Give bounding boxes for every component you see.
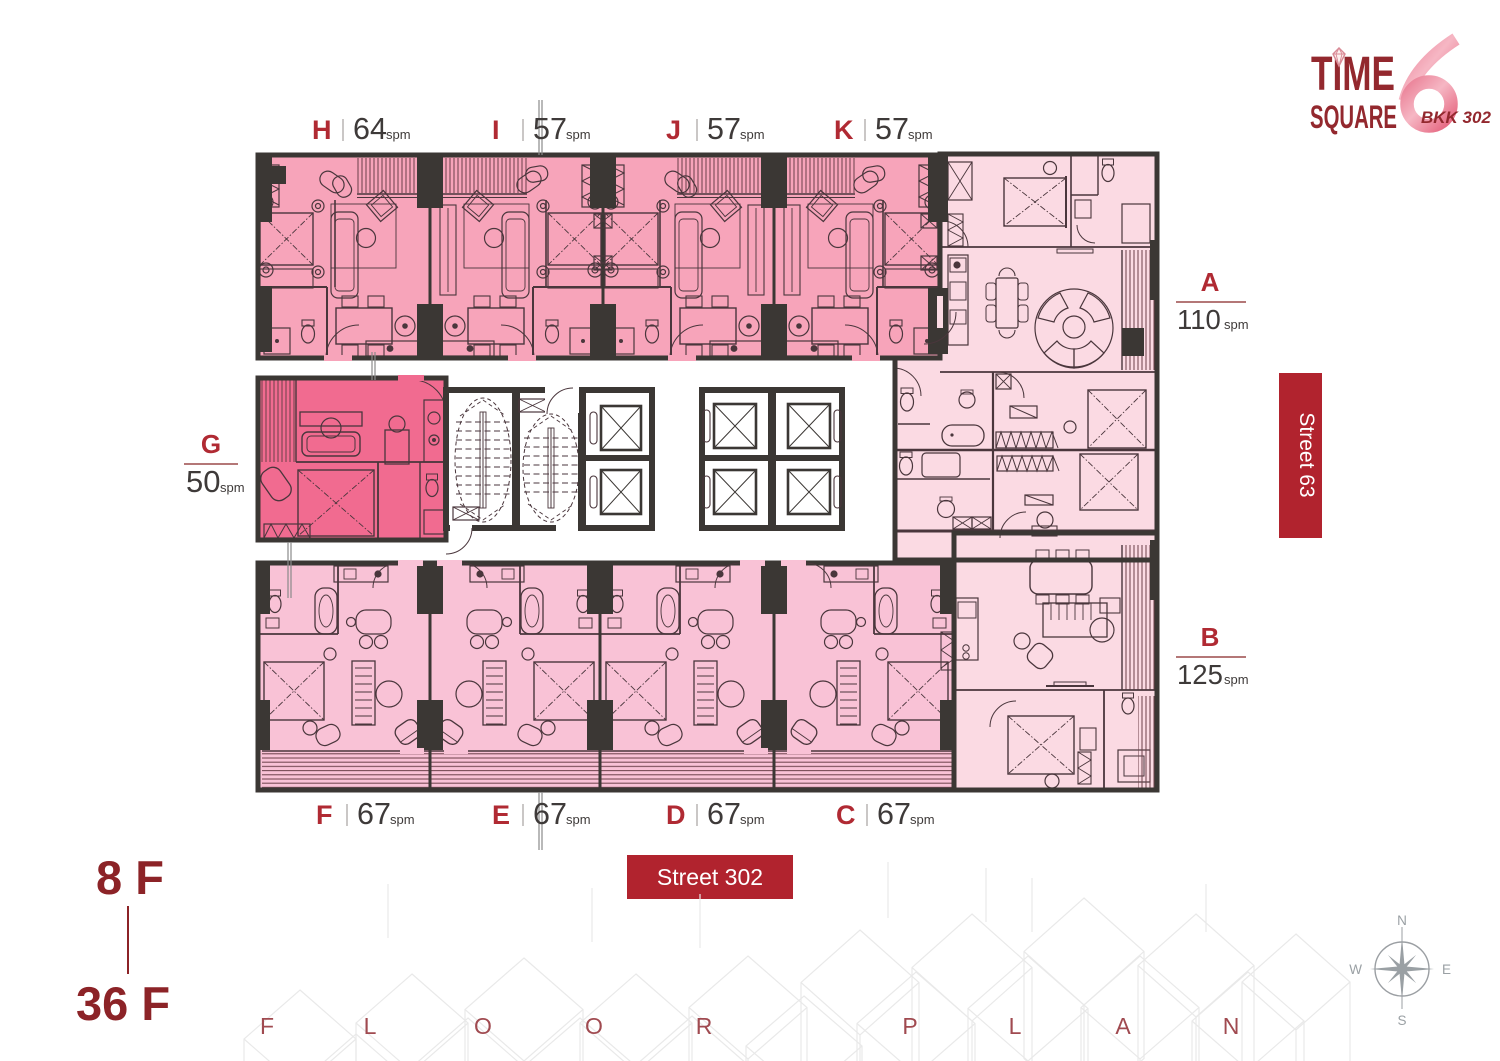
svg-text:spm: spm <box>1224 317 1249 332</box>
svg-text:57: 57 <box>533 112 567 146</box>
svg-text:D: D <box>666 800 686 830</box>
svg-text:K: K <box>834 115 854 145</box>
svg-text:110: 110 <box>1177 304 1221 335</box>
svg-text:G: G <box>201 429 221 459</box>
svg-text:A: A <box>1115 1013 1131 1039</box>
svg-text:F: F <box>316 800 333 830</box>
svg-text:O: O <box>474 1013 492 1039</box>
svg-text:N: N <box>1223 1013 1240 1039</box>
svg-text:R: R <box>696 1013 713 1039</box>
svg-text:spm: spm <box>1224 672 1249 687</box>
svg-text:67: 67 <box>707 797 741 831</box>
svg-text:64: 64 <box>353 112 387 146</box>
svg-text:F: F <box>260 1013 274 1039</box>
svg-text:Street 63: Street 63 <box>1295 412 1318 497</box>
svg-text:67: 67 <box>357 797 391 831</box>
svg-text:N: N <box>1397 913 1407 928</box>
svg-text:E: E <box>492 800 510 830</box>
svg-text:36 F: 36 F <box>76 977 170 1030</box>
svg-text:L: L <box>364 1013 377 1039</box>
svg-text:L: L <box>1009 1013 1022 1039</box>
svg-text:J: J <box>666 115 681 145</box>
svg-text:O: O <box>585 1013 603 1039</box>
svg-text:W: W <box>1349 962 1362 977</box>
svg-text:SQUARE: SQUARE <box>1310 99 1397 135</box>
svg-text:spm: spm <box>220 480 245 495</box>
svg-text:BKK 302: BKK 302 <box>1421 108 1491 127</box>
svg-text:C: C <box>836 800 856 830</box>
svg-text:67: 67 <box>877 797 911 831</box>
svg-text:I: I <box>492 115 500 145</box>
svg-text:P: P <box>902 1013 917 1039</box>
svg-text:spm: spm <box>740 812 765 827</box>
svg-text:67: 67 <box>533 797 567 831</box>
svg-text:50: 50 <box>186 464 220 499</box>
svg-text:S: S <box>1397 1013 1406 1028</box>
svg-text:B: B <box>1201 622 1220 652</box>
svg-text:8 F: 8 F <box>96 851 164 904</box>
svg-text:E: E <box>1442 962 1451 977</box>
svg-text:125: 125 <box>1177 659 1223 690</box>
svg-text:Street 302: Street 302 <box>657 864 763 890</box>
svg-text:TIME: TIME <box>1311 48 1395 101</box>
svg-text:spm: spm <box>386 127 411 142</box>
svg-text:spm: spm <box>566 812 591 827</box>
svg-text:H: H <box>312 115 332 145</box>
svg-text:spm: spm <box>910 812 935 827</box>
svg-text:spm: spm <box>390 812 415 827</box>
svg-text:spm: spm <box>908 127 933 142</box>
svg-text:57: 57 <box>707 112 741 146</box>
svg-text:A: A <box>1201 267 1220 297</box>
svg-text:57: 57 <box>875 112 909 146</box>
svg-text:spm: spm <box>566 127 591 142</box>
svg-text:spm: spm <box>740 127 765 142</box>
